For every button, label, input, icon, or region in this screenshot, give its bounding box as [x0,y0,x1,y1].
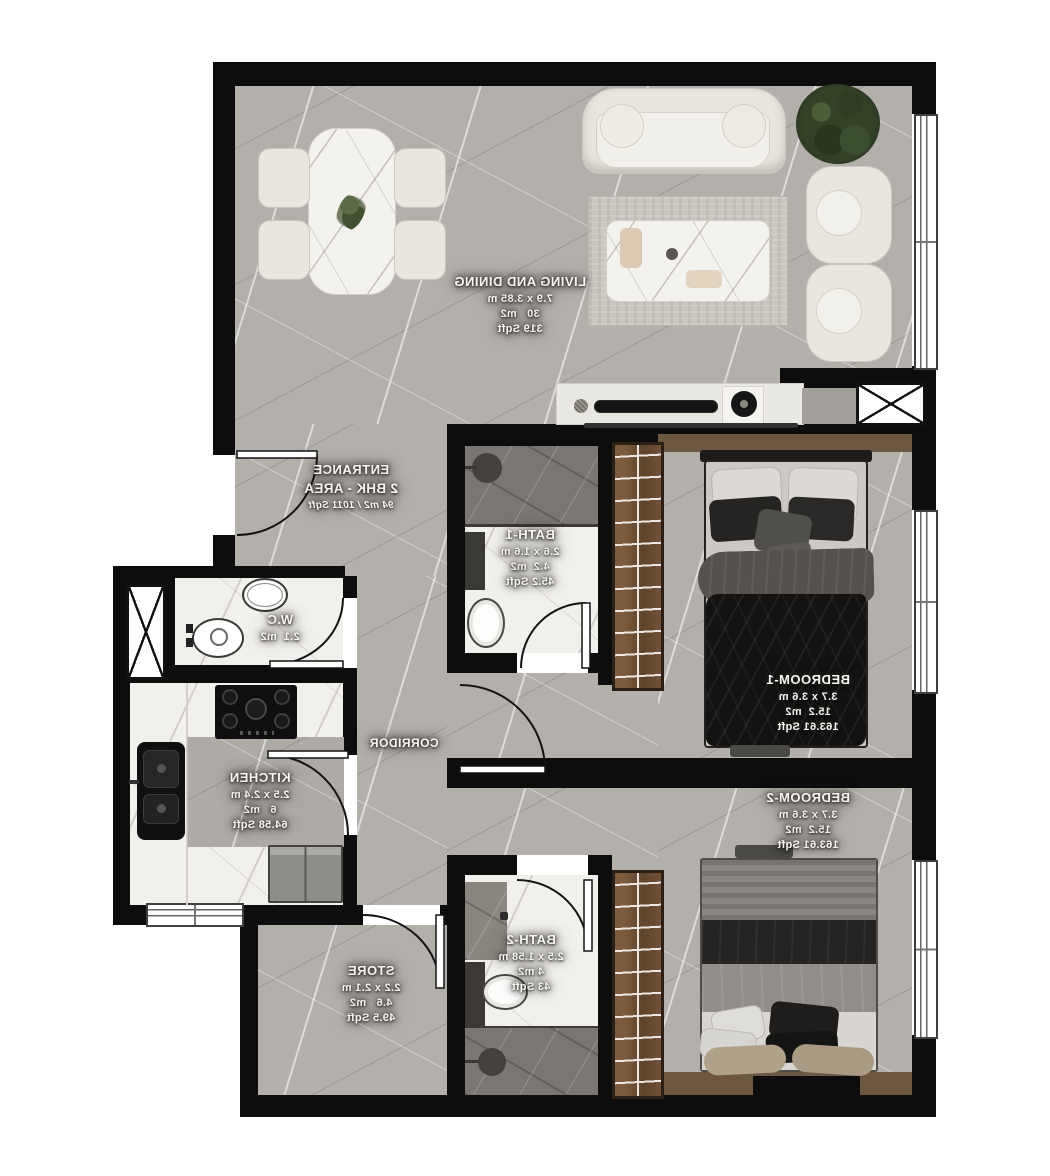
room-area-m2: 4 m2 [518,965,544,979]
wc-door-leaf [270,661,343,668]
room-dims: 3.7 x 3.6 m [779,690,838,704]
room-area-sqft: 49.5 Sqft [347,1011,396,1025]
room-dims: 2.2 x 2.1 m [342,981,401,995]
living-room-label: LIVING AND DINING 7.9 x 3.85 m 30 m2 319… [440,272,600,338]
room-name: CORRIDOR [369,736,438,752]
room-area-m2: 30 m2 [500,307,539,321]
room-name: BEDROOM-1 [766,672,850,689]
bedroom2-label: BEDROOM-2 3.7 x 3.6 m 15.2 m2 163.61 Sqf… [726,790,890,852]
room-area-sqft: 43 Sqft [512,980,551,994]
entry-door-leaf [237,451,317,458]
bath2-label: BATH-2 2.5 x 1.58 m 4 m2 43 Sqft [464,934,598,992]
bath1-door-arc [521,603,586,668]
store-door-leaf [436,915,444,988]
room-area-m2: 6 m2 [244,803,277,817]
room-area-sqft: 45.2 Sqft [506,575,555,589]
store-label: STORE 2.2 x 2.1 m 4.6 m2 49.5 Sqft [316,964,426,1024]
room-area-m2: 2.1 m2 [260,630,299,644]
room-name: BATH-2 [506,932,556,949]
entrance-label: ENTRANCE 2 BHK - AREA 94 m2 / 1011 Sqft [286,458,416,516]
room-name: LIVING AND DINING [454,274,586,291]
room-dims: 2.6 x 1.6 m [501,545,560,559]
room-dims: 3.7 x 3.6 m [779,808,838,822]
room-area-m2: 15.2 m2 [785,823,831,837]
kitchen-label: KITCHEN 2.5 x 2.4 m 6 m2 64.58 Sqft [192,770,328,832]
room-area-sqft: 163.61 Sqft [777,838,838,852]
bath1-label: BATH-1 2.6 x 1.6 m 4.2 m2 45.2 Sqft [462,528,598,588]
room-area-sqft: 64.58 Sqft [233,818,288,832]
room-name: W.C [267,612,293,629]
room-dims: 7.9 x 3.85 m [487,292,552,306]
wc-label: W.C 2.1 m2 [238,608,322,648]
unit-area: 94 m2 / 1011 Sqft [308,499,394,512]
room-name: STORE [347,963,394,980]
floor-plan: LIVING AND DINING 7.9 x 3.85 m 30 m2 319… [0,0,1050,1176]
bath1-door-leaf [582,603,590,668]
room-area-m2: 4.6 m2 [350,996,393,1010]
room-area-m2: 4.2 m2 [510,560,549,574]
room-dims: 2.5 x 2.4 m [231,788,290,802]
bedroom1-door-leaf [460,766,545,773]
room-name: ENTRANCE [313,462,389,479]
kitchen-door-leaf [268,751,348,758]
room-area-m2: 15.2 m2 [785,705,831,719]
bedroom1-door-arc [460,685,545,770]
bedroom1-label: BEDROOM-1 3.7 x 3.6 m 15.2 m2 163.61 Sqf… [726,672,890,734]
room-dims: 2.5 x 1.58 m [498,950,563,964]
room-name: BATH-1 [505,527,555,544]
unit-type: 2 BHK - AREA [304,480,398,498]
room-area-sqft: 319 Sqft [497,322,542,336]
room-name: KITCHEN [229,770,290,787]
corridor-label: CORRIDOR [360,733,448,755]
room-area-sqft: 163.61 Sqft [777,720,838,734]
room-name: BEDROOM-2 [766,790,850,807]
